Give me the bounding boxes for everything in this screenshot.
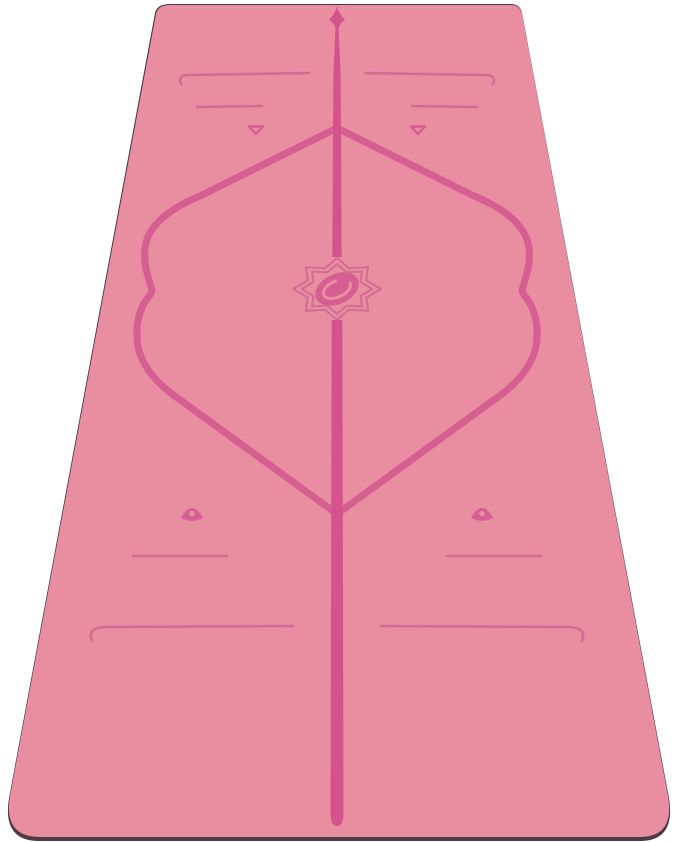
center-line-lower	[331, 320, 344, 826]
top-right-short-guide	[412, 106, 477, 107]
bottom-left-triangle-hole	[189, 511, 195, 517]
top-left-short-guide	[197, 106, 262, 107]
bottom-right-triangle-hole	[479, 511, 485, 517]
yoga-mat	[0, 0, 677, 842]
product-photo	[0, 0, 677, 842]
